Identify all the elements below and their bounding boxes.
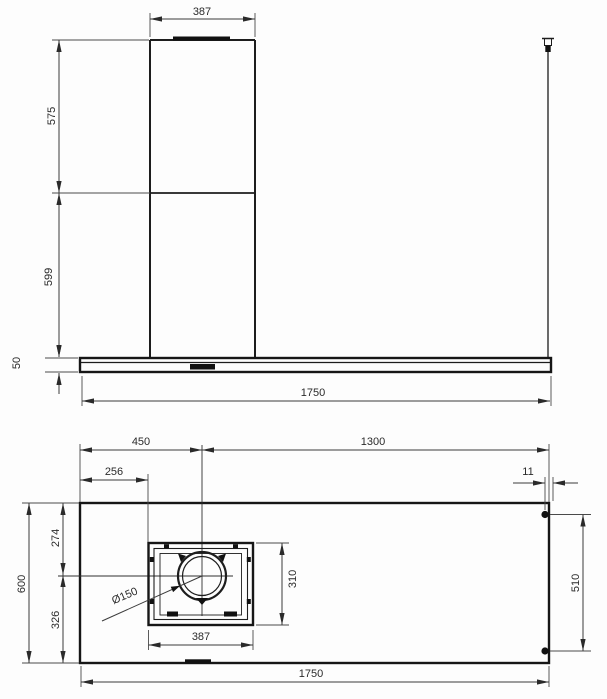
dim-upper-chimney-height: 575 <box>46 40 150 193</box>
chimney-outline <box>150 37 255 359</box>
collar-tab <box>196 598 208 605</box>
duct-box <box>149 543 254 625</box>
dim-label-left-to-duct-center: 450 <box>132 436 150 448</box>
dim-plan-total-width: 1750 <box>81 666 549 687</box>
dim-label-front-duct-width: 387 <box>193 6 211 18</box>
dim-total-depth: 600 <box>16 503 79 663</box>
mounting-slot <box>224 612 237 617</box>
dim-label-duct-center-to-right: 1300 <box>361 436 385 448</box>
dim-label-left-to-duct-box: 256 <box>105 466 123 478</box>
dim-label-front-total-width: 1750 <box>301 387 325 399</box>
control-panel-mark-plan <box>185 659 211 663</box>
dim-label-upper-chimney-height: 575 <box>46 107 58 125</box>
front-view: 387 575 599 50 1750 <box>11 6 554 406</box>
dim-lower-chimney-height: 599 <box>43 193 59 357</box>
dim-front-total-width: 1750 <box>82 376 551 406</box>
control-panel-mark <box>190 364 215 370</box>
dim-label-mount-span: 510 <box>570 574 582 592</box>
dim-label-total-depth: 600 <box>16 575 28 593</box>
dim-label-duct-box-depth: 310 <box>287 570 299 588</box>
drawing-canvas: 387 575 599 50 1750 <box>0 0 607 699</box>
dim-label-body-height: 50 <box>11 357 23 369</box>
mount-point <box>541 511 548 518</box>
dim-label-duct-diameter: Ø150 <box>110 585 139 607</box>
leader-arrow <box>171 586 180 592</box>
dim-label-lower-chimney-height: 599 <box>43 268 55 286</box>
mounting-slot <box>167 612 178 617</box>
dim-label-plan-total-width: 1750 <box>299 668 323 680</box>
dim-body-height: 50 <box>11 336 78 394</box>
dim-label-duct-center-to-rear: 326 <box>50 611 62 629</box>
dim-label-mount-inset: 11 <box>522 466 533 478</box>
dim-label-duct-box-width: 387 <box>192 631 210 643</box>
duct-opening-mark <box>173 37 230 41</box>
dim-left-to-duct-center: 450 <box>80 436 549 502</box>
technical-drawing: 387 575 599 50 1750 <box>0 0 607 699</box>
dim-duct-diameter: Ø150 <box>102 576 202 621</box>
suspension-wire <box>542 39 554 359</box>
dim-duct-box-depth: 310 <box>256 543 299 625</box>
dim-label-front-to-duct-center: 274 <box>50 529 62 547</box>
plan-body-outline <box>80 503 549 664</box>
mount-point <box>541 647 548 654</box>
dim-front-to-duct-center: 274 <box>50 503 63 575</box>
hood-body <box>80 358 551 372</box>
plan-view: 450 1300 256 11 274 326 <box>16 436 591 687</box>
dim-front-duct-width: 387 <box>150 6 255 37</box>
dim-mount-span: 510 <box>550 515 591 652</box>
dim-duct-center-to-rear: 326 <box>50 575 63 663</box>
dim-duct-box-width: 387 <box>149 630 254 650</box>
dim-duct-center-to-right: 1300 <box>202 436 549 450</box>
